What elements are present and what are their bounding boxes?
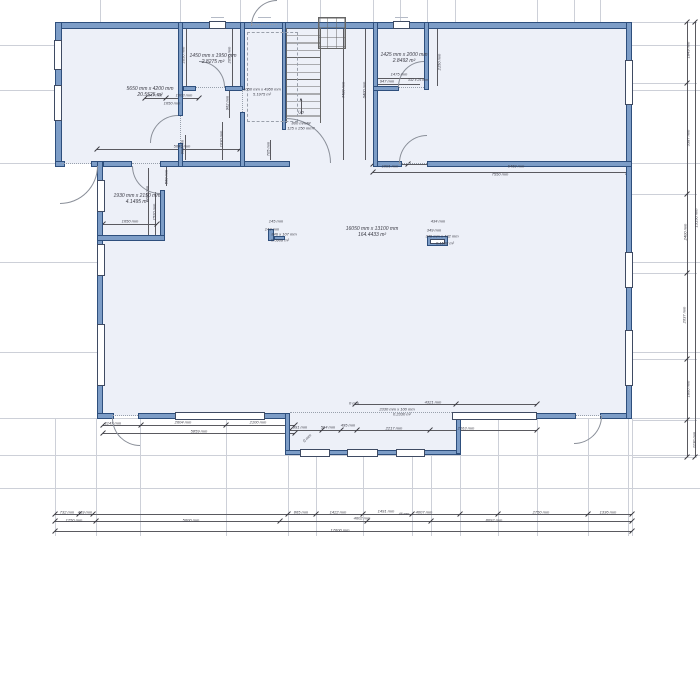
window	[54, 85, 62, 121]
window	[97, 180, 105, 212]
dimension-line	[103, 224, 157, 225]
extension-line	[537, 0, 538, 22]
dim-label: 1650 mm	[164, 101, 181, 106]
wall-tr-bottom	[427, 161, 632, 167]
dim-label: Up	[298, 110, 304, 115]
dim-label: 865 mm	[294, 510, 308, 515]
extension-line	[600, 0, 601, 22]
dim-label: 1491 mm	[378, 509, 395, 514]
wall-v3	[240, 112, 245, 167]
opening-dashed-line	[132, 163, 160, 164]
dim-label: 1422 mm	[330, 510, 347, 515]
dim-label: 2217 mm	[386, 426, 403, 431]
dim-label: 0 mm	[349, 401, 359, 406]
wall-bay-right	[456, 418, 461, 454]
dim-label: 2163 mm	[458, 426, 475, 431]
dim-label: 2100 mm	[250, 420, 267, 425]
opening-dashed-line	[397, 87, 424, 88]
dim-label: 125 x 250 mm?	[287, 126, 315, 131]
dim-label: 1100 mm	[145, 186, 150, 202]
dim-label: 1336 mm	[600, 510, 617, 515]
room-fill-main	[100, 164, 628, 416]
dim-label: 1003 mm	[176, 93, 193, 98]
opening-dashed-line	[399, 163, 427, 164]
window	[625, 60, 633, 105]
dim-label: 7550 mm	[492, 172, 509, 177]
window-tag-mark	[395, 17, 408, 18]
door-arc-top-entry	[251, 0, 277, 26]
wall-v6	[373, 22, 378, 167]
dim-label: 5859 mm	[191, 429, 208, 434]
dim-label: 1650 mm	[122, 219, 139, 224]
dim-label: 8092 mm	[486, 518, 503, 523]
dim-label: 2.8492 m²	[393, 58, 416, 64]
dim-label: 0.2330 m²	[393, 412, 411, 417]
dim-label: 332 x 25 mm	[408, 78, 428, 82]
dim-label: 647 mm	[148, 93, 162, 98]
dim-label: 4007 mm	[416, 510, 433, 515]
opening-dashed-line	[574, 415, 601, 416]
dim-label: 1860 mm	[686, 381, 691, 398]
stair-landing-grid	[318, 17, 346, 49]
dim-label: 5600 mm	[183, 518, 200, 523]
extension-line	[427, 0, 428, 22]
door-arc-bottom-right	[574, 416, 602, 444]
extension-line	[287, 0, 288, 22]
dim-label: 4602 mm	[354, 516, 371, 521]
dim-label: 1849 mm	[686, 42, 691, 59]
window	[625, 252, 633, 288]
dimension-line	[290, 430, 537, 431]
dim-label: 46 mm	[399, 512, 410, 516]
dim-label: 1250 mm	[66, 518, 83, 523]
extension-line	[574, 0, 575, 22]
floorplan-canvas: 1450 mm x 1950 mm2.8275 m²5650 mm x 4200…	[0, 0, 700, 700]
dim-label: 947 mm	[380, 79, 394, 84]
dim-label: 962 mm	[225, 96, 230, 110]
dimension-line	[55, 521, 632, 522]
wall-closet-shelf-b	[225, 86, 243, 91]
room-fill-bay	[288, 416, 458, 452]
opening-dashed-line	[242, 90, 243, 112]
dim-label: 5.1975 m²	[253, 92, 271, 97]
extension-line	[373, 0, 374, 22]
window	[393, 21, 410, 29]
dim-label: 1520 mm	[152, 204, 157, 221]
dim-label: 1081 mm	[382, 164, 399, 169]
dim-label: 6469 mm	[508, 164, 525, 169]
dim-label: 13150 mm	[694, 209, 699, 228]
wall-closet-shelf-a	[183, 86, 196, 91]
dim-label: 349 mm x 432 mm	[425, 234, 458, 239]
dim-label: 2400 mm	[683, 224, 688, 241]
extension-line	[226, 418, 227, 536]
dim-label: 4321 mm	[425, 400, 442, 405]
opening-dashed-line	[112, 415, 140, 416]
extension-line	[0, 488, 700, 489]
dim-label: 4400 mm	[341, 82, 346, 99]
extension-line	[140, 418, 141, 536]
dim-label: 2050 mm	[181, 47, 186, 64]
extension-line	[628, 418, 629, 536]
dim-label: 564 mm	[321, 425, 335, 430]
dim-label: 846 x 107 mm	[271, 232, 296, 237]
dimension-line	[695, 22, 696, 457]
dim-label: 560 mm	[164, 170, 169, 184]
dim-label: 1130 mm	[692, 432, 697, 448]
dim-label: 732 mm	[60, 510, 74, 515]
dim-label: 2604 mm	[175, 420, 192, 425]
wall-v2	[240, 22, 245, 90]
dim-label: 164.4433 m²	[358, 232, 386, 238]
dim-label: 1475 mm	[391, 72, 408, 77]
dimension-line	[97, 149, 240, 150]
opening-dashed-line	[290, 412, 456, 413]
window	[54, 40, 62, 70]
dim-label: 1030 mm	[219, 131, 224, 148]
window-tag-mark	[211, 17, 224, 18]
extension-line	[537, 418, 538, 536]
door-arc-left-step	[60, 166, 98, 204]
extension-line	[400, 0, 401, 22]
window	[347, 449, 378, 457]
wall-tr-shelf	[373, 86, 399, 91]
extension-line	[455, 0, 456, 22]
extension-line	[100, 0, 101, 22]
dim-label: 900 mm	[180, 140, 185, 154]
window	[97, 324, 105, 386]
window	[175, 412, 265, 420]
dimension-line	[355, 404, 537, 405]
window	[396, 449, 425, 457]
opening-dashed-line	[251, 24, 277, 25]
dimension-line	[186, 28, 187, 86]
dim-label: 2637 mm	[682, 307, 687, 324]
dim-label: 145 mm	[269, 219, 283, 224]
dim-label: 2.8275 m²	[202, 59, 225, 65]
stair-headroom-dashed	[247, 32, 298, 122]
dim-label: 2050 mm	[227, 47, 232, 64]
extension-line	[240, 0, 241, 22]
wall-mid-h-a	[103, 161, 132, 167]
dim-label: 1147 mm	[105, 421, 121, 426]
dim-label: ▲	[299, 97, 303, 102]
dimension-line	[145, 98, 199, 99]
wall-v8	[160, 190, 165, 240]
dim-label: 2150 mm	[437, 54, 442, 71]
dim-label: 2750 mm	[533, 510, 550, 515]
dim-label: 705 mm	[266, 142, 271, 156]
window	[300, 449, 330, 457]
dim-label: 434 mm	[431, 219, 445, 224]
dim-label: 349 mm	[427, 228, 441, 233]
dim-label: 0.1508 m²	[436, 241, 454, 246]
wall-h3	[97, 235, 165, 241]
window	[97, 244, 105, 276]
window	[209, 21, 226, 29]
opening-dashed-line	[62, 163, 91, 164]
dim-label: 3387 mm	[686, 130, 691, 147]
dim-label: 419 mm	[78, 510, 92, 515]
dim-label: 17600 mm	[331, 528, 350, 533]
window	[452, 412, 537, 420]
dim-label: 991 mm	[293, 425, 307, 430]
dim-label: 495 mm	[341, 423, 355, 428]
opening-dashed-line	[196, 87, 225, 88]
extension-line	[180, 0, 181, 22]
dim-label: 0.0908 m²	[271, 238, 289, 243]
window	[625, 330, 633, 386]
dim-label: 6400 mm	[362, 82, 367, 99]
